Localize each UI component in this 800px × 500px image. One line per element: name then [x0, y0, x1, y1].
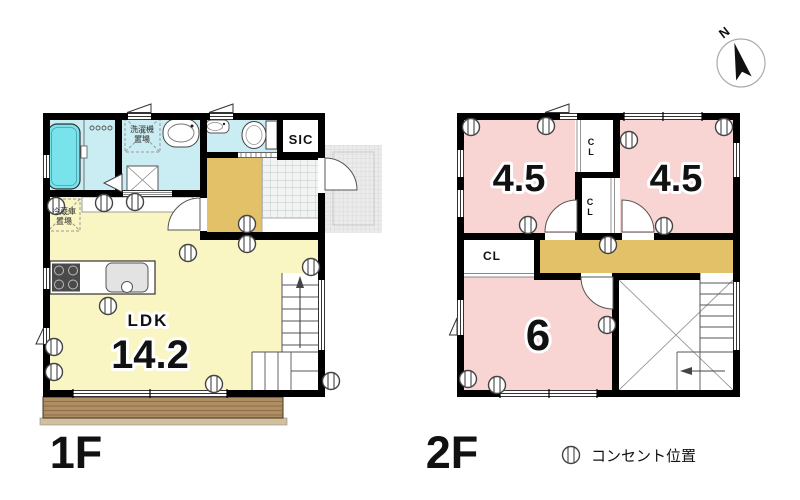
washer-place-label: 洗濯機	[130, 124, 154, 134]
outlet-icon	[46, 339, 63, 356]
bath-mixer	[81, 146, 87, 158]
sink-drain	[122, 282, 133, 293]
sic-label: SIC	[289, 132, 314, 147]
outlet-icon	[127, 194, 144, 211]
outlet-icon	[520, 217, 537, 234]
outlet-icon	[96, 195, 113, 212]
floor1-label: 1F	[50, 427, 103, 478]
closet-label-lower: C	[587, 197, 594, 207]
bedroom-right-area: 4.5	[650, 158, 703, 200]
outlet-icon	[599, 317, 616, 334]
floor2-label: 2F	[426, 427, 479, 478]
awning-window-icon	[127, 104, 151, 113]
kitchen-counter	[50, 261, 155, 294]
stairs-down-arrowhead	[680, 367, 692, 375]
toilet-hand-basin	[206, 120, 229, 133]
outlet-icon	[489, 377, 506, 394]
outlet-icon	[716, 119, 733, 136]
toilet	[242, 121, 277, 149]
entrance-tile-grid	[262, 158, 318, 218]
washbasin	[163, 119, 199, 147]
outlet-icon	[600, 237, 617, 254]
outlet-icon	[206, 376, 223, 393]
outlet-icon	[656, 218, 673, 235]
legend-outlet-icon	[563, 447, 580, 464]
floor-plan-page: LDK 14.2 SIC 洗濯機 置場 冷蔵庫 置場 1F	[0, 0, 800, 500]
entrance-step	[262, 218, 318, 232]
closet-label-upper: L	[588, 147, 594, 157]
closet-label-upper: C	[588, 137, 595, 147]
closet-label-lower: L	[587, 207, 593, 217]
legend-outlet-label: コンセント位置	[591, 448, 696, 465]
wood-deck	[40, 397, 287, 425]
compass-north-label: N	[716, 24, 733, 42]
stairwell-2f	[619, 273, 733, 390]
casement-window-icon	[36, 328, 44, 344]
compass: N	[716, 24, 765, 87]
legend: コンセント位置	[563, 447, 697, 466]
outlet-icon	[239, 236, 256, 253]
outlet-icon	[239, 216, 256, 233]
hallway2-floor	[540, 240, 733, 273]
ldk-area: 14.2	[111, 333, 189, 377]
outlet-icon	[323, 373, 340, 390]
ldk-name: LDK	[128, 311, 169, 330]
entrance-opening	[318, 158, 325, 193]
closet-label-room6: CL	[483, 249, 501, 263]
floor2-plan: 4.5 4.5 6 C L C L CL 2F	[426, 104, 740, 478]
bedroom-left-area: 4.5	[493, 158, 546, 200]
outlet-icon	[46, 364, 63, 381]
fridge-place-label: 置場	[56, 216, 72, 226]
outlet-icon	[621, 132, 638, 149]
floor1-plan: LDK 14.2 SIC 洗濯機 置場 冷蔵庫 置場 1F	[36, 104, 382, 478]
outlet-icon	[180, 245, 197, 262]
outlet-icon	[100, 298, 117, 315]
outlet-icon	[463, 119, 480, 136]
awning-window-icon	[209, 104, 233, 113]
casement-window-icon	[450, 318, 458, 335]
outlet-icon	[538, 118, 555, 135]
fridge-place-label: 冷蔵庫	[52, 206, 76, 216]
awning-window-icon	[545, 104, 569, 113]
outlet-icon	[303, 259, 320, 276]
floor-hatch-square	[127, 166, 158, 194]
floor-plan: LDK 14.2 SIC 洗濯機 置場 冷蔵庫 置場 1F	[0, 0, 800, 500]
outlet-icon	[460, 371, 477, 388]
stove	[52, 264, 80, 292]
bathtub	[48, 124, 80, 189]
washer-place-label: 置場	[134, 134, 150, 144]
bedroom-bottom-area: 6	[526, 311, 550, 360]
ldk-door-opening	[200, 198, 207, 231]
